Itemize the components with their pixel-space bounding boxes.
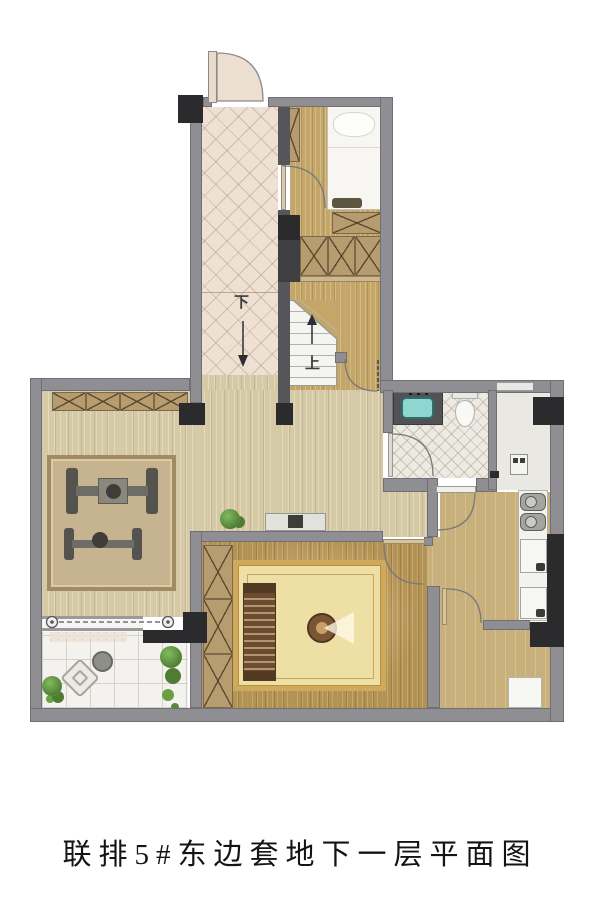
sink-basin bbox=[401, 397, 434, 419]
wall-end-cap bbox=[490, 471, 499, 478]
living-cabinet bbox=[52, 392, 188, 411]
ramp-divider-line bbox=[202, 292, 278, 293]
bed-fold-line bbox=[328, 147, 380, 148]
stair-up-label: 上 bbox=[305, 357, 320, 372]
stool-cushion bbox=[316, 622, 328, 634]
wall bbox=[190, 531, 383, 542]
wall-black bbox=[530, 622, 564, 647]
stairs bbox=[288, 300, 337, 386]
terrace-floor bbox=[42, 632, 188, 708]
study-door-leaf bbox=[383, 539, 425, 544]
window-top bbox=[497, 382, 533, 391]
exercise-machine-1 bbox=[66, 466, 158, 518]
bedroom-closet bbox=[300, 236, 383, 276]
side-table bbox=[92, 651, 113, 672]
plan-caption: 联排5#东边套地下一层平面图 bbox=[0, 831, 600, 873]
bed-end-bench bbox=[332, 212, 382, 234]
hall-door-leaf bbox=[436, 486, 476, 493]
terrace-plant-right bbox=[160, 646, 182, 668]
bathroom-door-leaf bbox=[388, 433, 393, 477]
storage-door-leaf bbox=[442, 588, 447, 625]
wall-end-cap bbox=[179, 403, 205, 425]
roller-blind-icon bbox=[163, 617, 174, 628]
study-wardrobe bbox=[203, 545, 233, 708]
door-pivot-post bbox=[424, 537, 433, 546]
wall-end-cap bbox=[276, 403, 293, 425]
entry-door-leaf bbox=[208, 51, 217, 103]
wall-black bbox=[143, 630, 185, 643]
wall bbox=[30, 378, 42, 722]
ramp-down-label: 下 bbox=[234, 296, 249, 311]
wall-dark bbox=[278, 107, 290, 165]
wall bbox=[380, 380, 564, 393]
wall bbox=[483, 620, 530, 630]
wall bbox=[380, 97, 393, 393]
bookshelf bbox=[243, 583, 276, 681]
storage-white-box bbox=[508, 677, 542, 708]
bed-foot-item bbox=[332, 198, 362, 208]
terrace-window-line bbox=[42, 628, 143, 631]
terrace-window-line bbox=[42, 616, 143, 619]
closet-shelf bbox=[300, 276, 383, 282]
potted-plant-hall bbox=[220, 509, 240, 529]
pillow bbox=[333, 112, 375, 137]
terrace-plant-left bbox=[42, 676, 62, 696]
floor-plan-page: 下 上 联排5#东边套地下一层平面图 bbox=[0, 0, 600, 900]
structural-column bbox=[278, 215, 300, 241]
laundry-tub-1-drain bbox=[536, 563, 545, 571]
bedroom-door-leaf bbox=[281, 165, 286, 210]
wall-black bbox=[183, 612, 207, 643]
structural-column bbox=[178, 95, 203, 123]
structural-column bbox=[533, 397, 564, 425]
entry-door-swing bbox=[217, 53, 263, 101]
bookshelf-cap-bottom bbox=[243, 671, 276, 681]
terrace-sill-hatch bbox=[50, 632, 127, 642]
wall bbox=[427, 586, 440, 708]
round-sink-2-basin bbox=[525, 516, 537, 528]
ramp-landing-floor bbox=[202, 375, 278, 391]
wall bbox=[30, 708, 564, 722]
laundry-tub-2-drain bbox=[536, 609, 545, 617]
entry-ramp-floor bbox=[202, 107, 278, 375]
wall bbox=[30, 378, 190, 391]
wall bbox=[268, 97, 393, 107]
wall bbox=[335, 352, 347, 363]
wall-dark bbox=[278, 240, 300, 282]
wall bbox=[383, 390, 393, 433]
round-sink-1-basin bbox=[525, 496, 537, 508]
hall-doorway-floor bbox=[383, 492, 427, 537]
water-heater-knobs bbox=[513, 458, 525, 463]
wall bbox=[190, 97, 202, 403]
bookshelf-cap-top bbox=[243, 583, 276, 593]
exercise-machine-2 bbox=[64, 524, 146, 564]
sideboard-decor bbox=[288, 515, 303, 528]
